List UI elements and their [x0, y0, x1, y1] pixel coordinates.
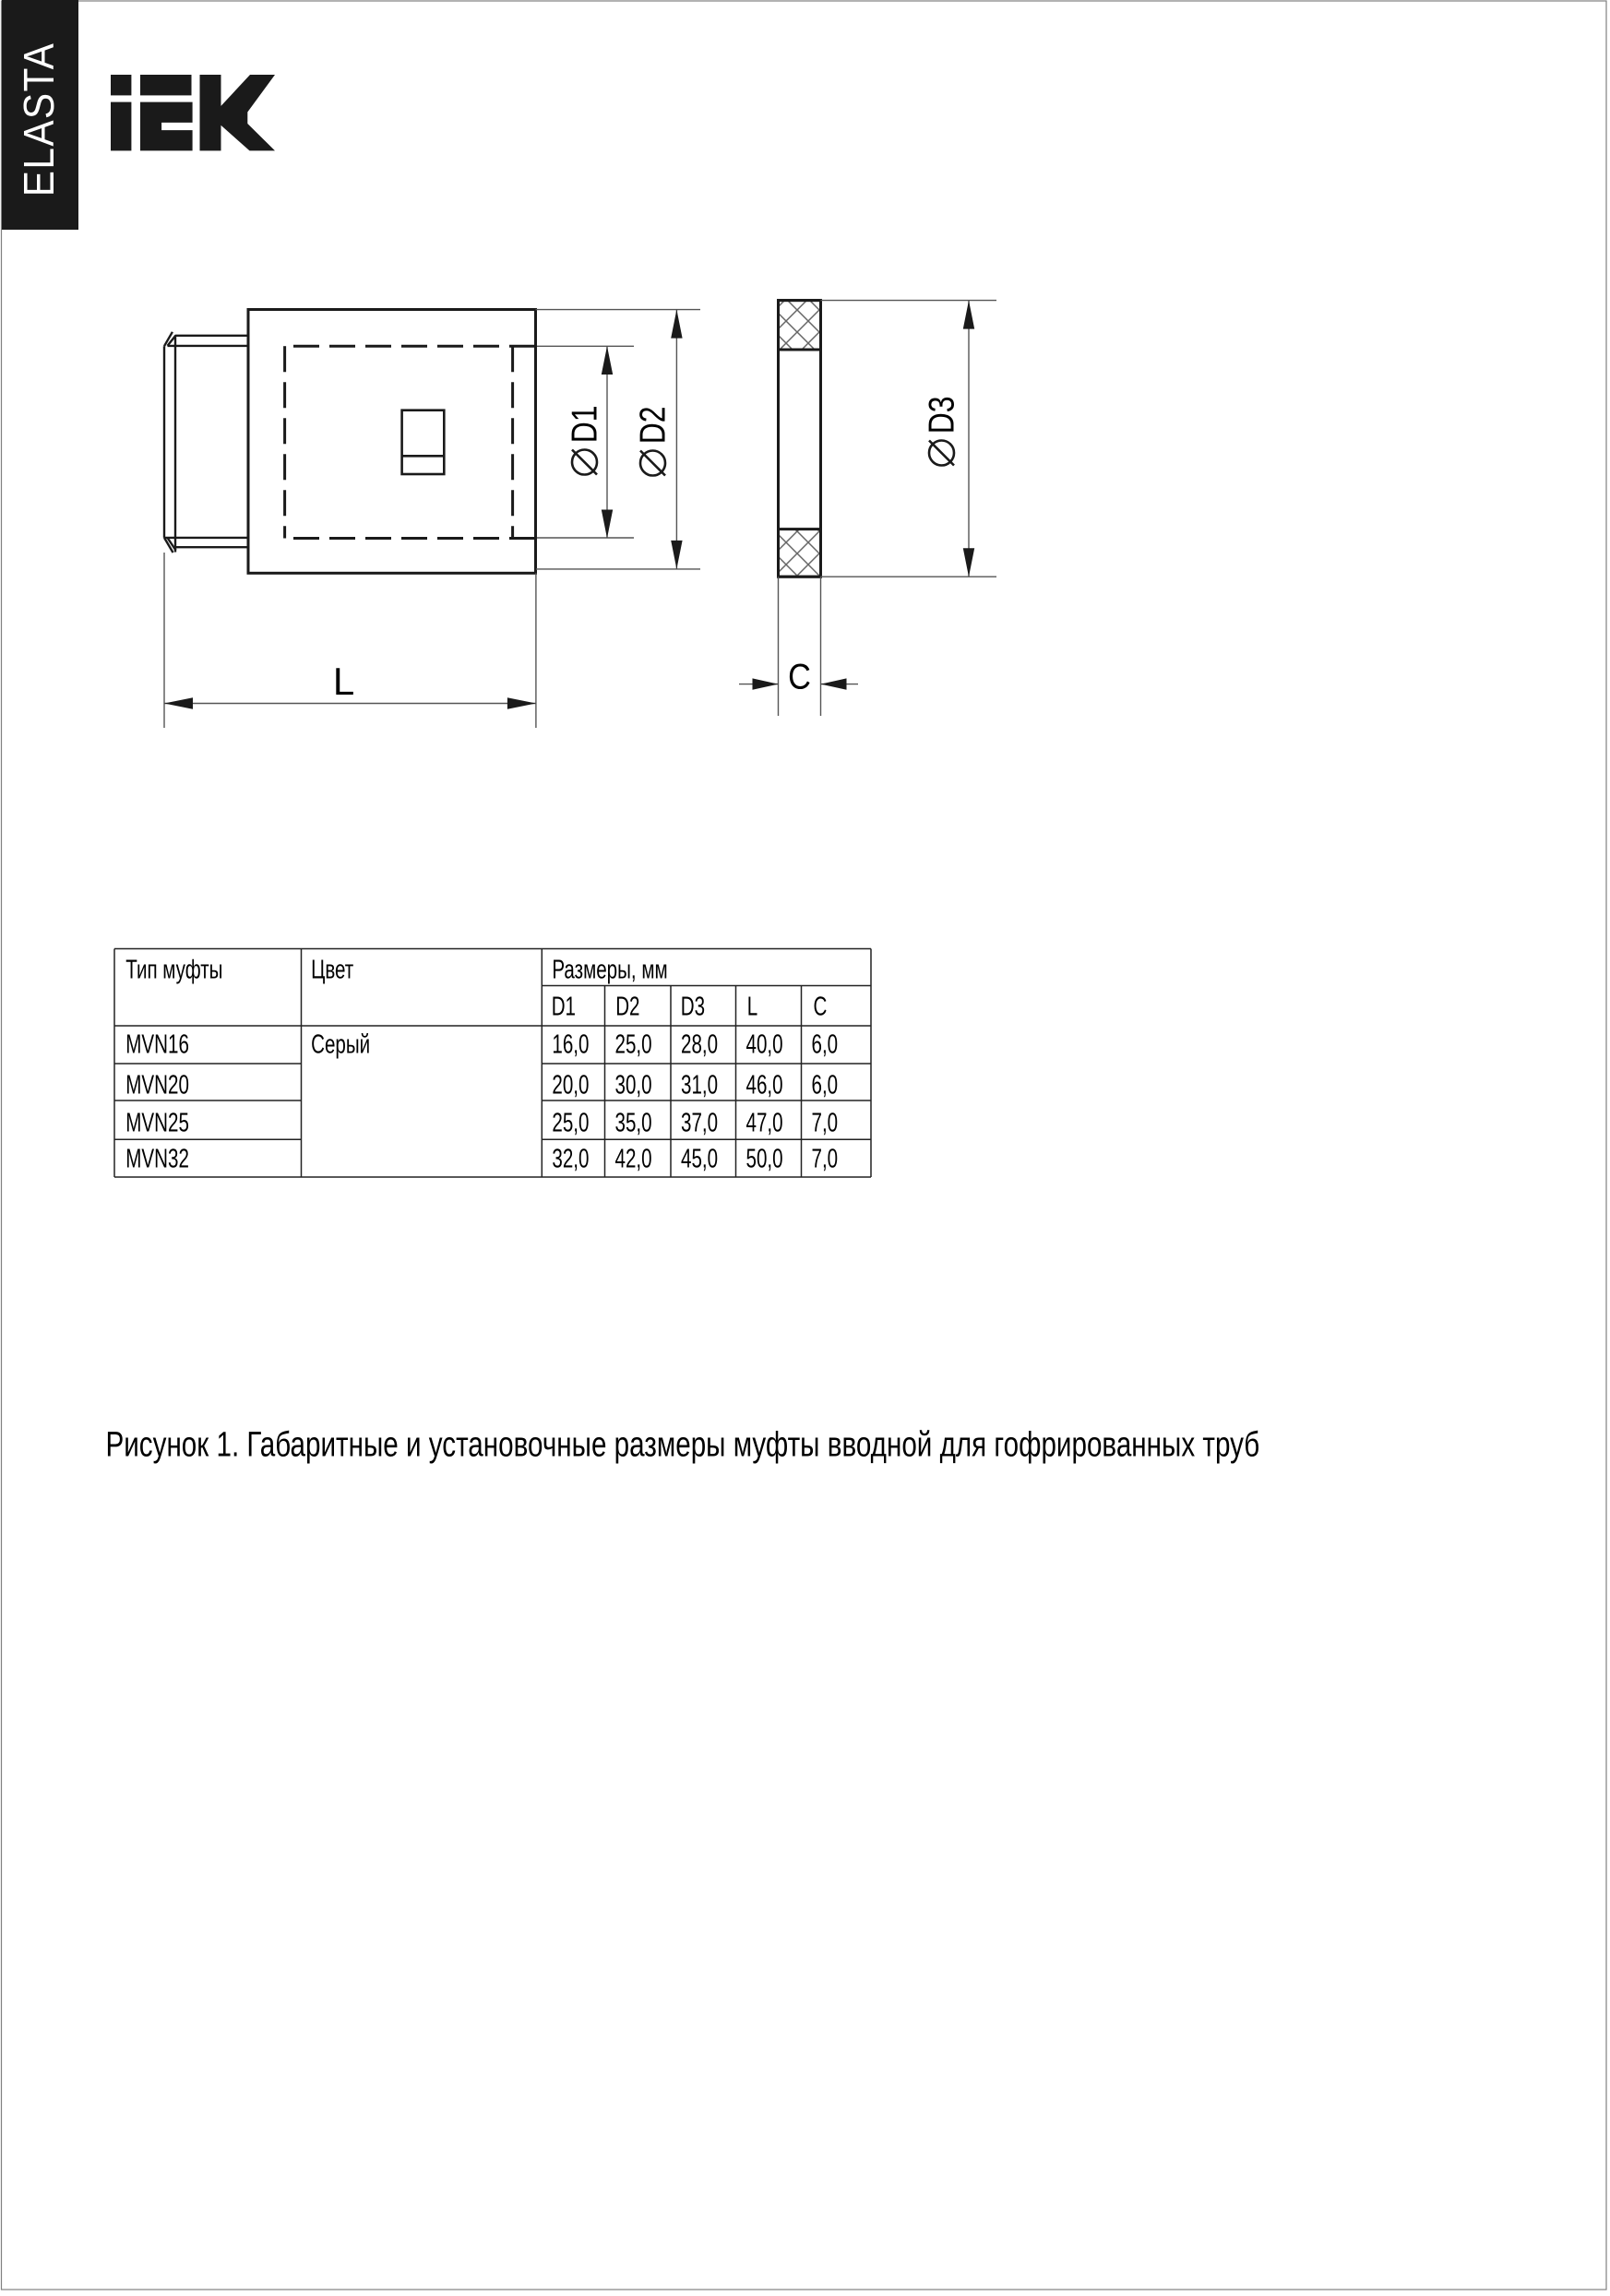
svg-text:C: C	[788, 656, 811, 696]
svg-text:40,0: 40,0	[746, 1029, 783, 1059]
svg-text:31,0: 31,0	[681, 1070, 718, 1100]
svg-text:D1: D1	[565, 405, 605, 443]
svg-text:Размеры, мм: Размеры, мм	[552, 955, 667, 984]
svg-text:D3: D3	[922, 396, 962, 434]
svg-text:7,0: 7,0	[812, 1144, 839, 1173]
svg-text:28,0: 28,0	[681, 1029, 718, 1059]
svg-text:42,0: 42,0	[615, 1144, 652, 1173]
svg-text:MVN16: MVN16	[125, 1029, 189, 1059]
svg-text:37,0: 37,0	[681, 1108, 718, 1137]
svg-text:35,0: 35,0	[615, 1108, 652, 1137]
svg-text:45,0: 45,0	[681, 1144, 718, 1173]
svg-text:MVN25: MVN25	[125, 1108, 189, 1137]
svg-text:C: C	[814, 992, 828, 1021]
svg-text:D3: D3	[681, 992, 705, 1021]
svg-text:MVN32: MVN32	[125, 1144, 189, 1173]
svg-text:50,0: 50,0	[746, 1144, 783, 1173]
svg-text:25,0: 25,0	[552, 1108, 589, 1137]
svg-text:ELASTA: ELASTA	[16, 42, 63, 196]
svg-text:16,0: 16,0	[552, 1029, 589, 1059]
svg-text:Цвет: Цвет	[311, 955, 353, 984]
svg-text:6,0: 6,0	[812, 1029, 839, 1059]
svg-text:MVN20: MVN20	[125, 1070, 189, 1100]
svg-text:Рисунок 1. Габаритные и устано: Рисунок 1. Габаритные и установочные раз…	[106, 1425, 1260, 1464]
svg-text:47,0: 47,0	[746, 1108, 783, 1137]
svg-text:30,0: 30,0	[615, 1070, 652, 1100]
svg-text:D2: D2	[615, 992, 639, 1021]
svg-text:D2: D2	[633, 406, 674, 444]
svg-text:L: L	[333, 660, 354, 703]
svg-text:6,0: 6,0	[812, 1070, 839, 1100]
svg-text:7,0: 7,0	[812, 1108, 839, 1137]
svg-text:20,0: 20,0	[552, 1070, 589, 1100]
svg-text:46,0: 46,0	[746, 1070, 783, 1100]
svg-text:L: L	[747, 992, 757, 1021]
svg-text:D1: D1	[552, 992, 576, 1021]
svg-text:Серый: Серый	[311, 1029, 370, 1059]
svg-text:Тип муфты: Тип муфты	[125, 955, 222, 984]
svg-text:32,0: 32,0	[552, 1144, 589, 1173]
svg-text:25,0: 25,0	[615, 1029, 652, 1059]
